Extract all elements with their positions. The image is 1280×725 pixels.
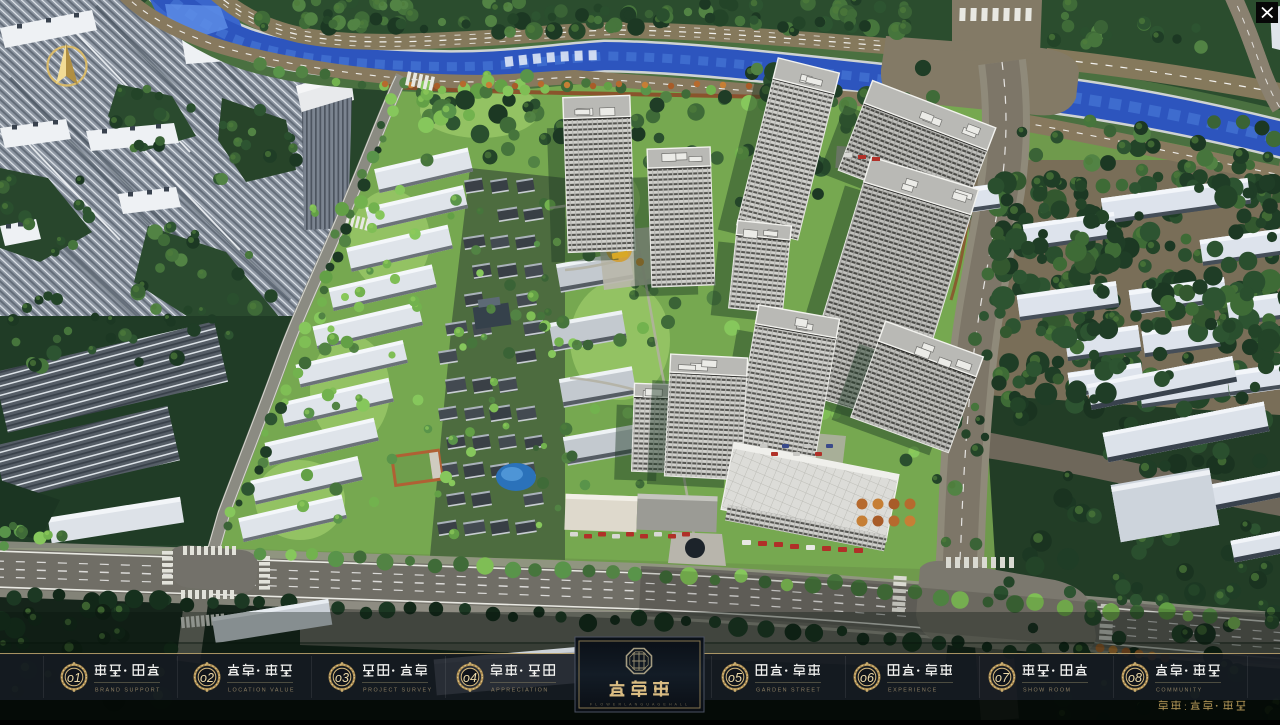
svg-text:o7: o7 xyxy=(995,671,1010,685)
svg-text:o6: o6 xyxy=(860,671,874,685)
svg-text:o4: o4 xyxy=(463,671,477,685)
svg-text:BRAND SUPPORT: BRAND SUPPORT xyxy=(95,688,161,694)
svg-text:APPRECIATION: APPRECIATION xyxy=(491,688,549,694)
svg-text:GARDEN STREET: GARDEN STREET xyxy=(756,688,821,694)
svg-text:LOCATION VALUE: LOCATION VALUE xyxy=(228,688,295,694)
svg-text:PROJECT SURVEY: PROJECT SURVEY xyxy=(363,688,433,694)
svg-text::: : xyxy=(1184,702,1187,713)
svg-text:COMMUNITY: COMMUNITY xyxy=(1156,688,1203,694)
svg-text:EXPERIENCE: EXPERIENCE xyxy=(888,688,938,694)
svg-text:o1: o1 xyxy=(67,671,81,685)
svg-text:SHOW ROOM: SHOW ROOM xyxy=(1023,688,1072,694)
svg-text:o3: o3 xyxy=(335,671,349,685)
svg-text:o2: o2 xyxy=(200,671,214,685)
svg-text:o8: o8 xyxy=(1128,671,1142,685)
svg-text:o5: o5 xyxy=(728,671,742,685)
svg-text:F L O W E R L A N G U A G E: F L O W E R L A N G U A G E H A L L xyxy=(590,703,688,707)
